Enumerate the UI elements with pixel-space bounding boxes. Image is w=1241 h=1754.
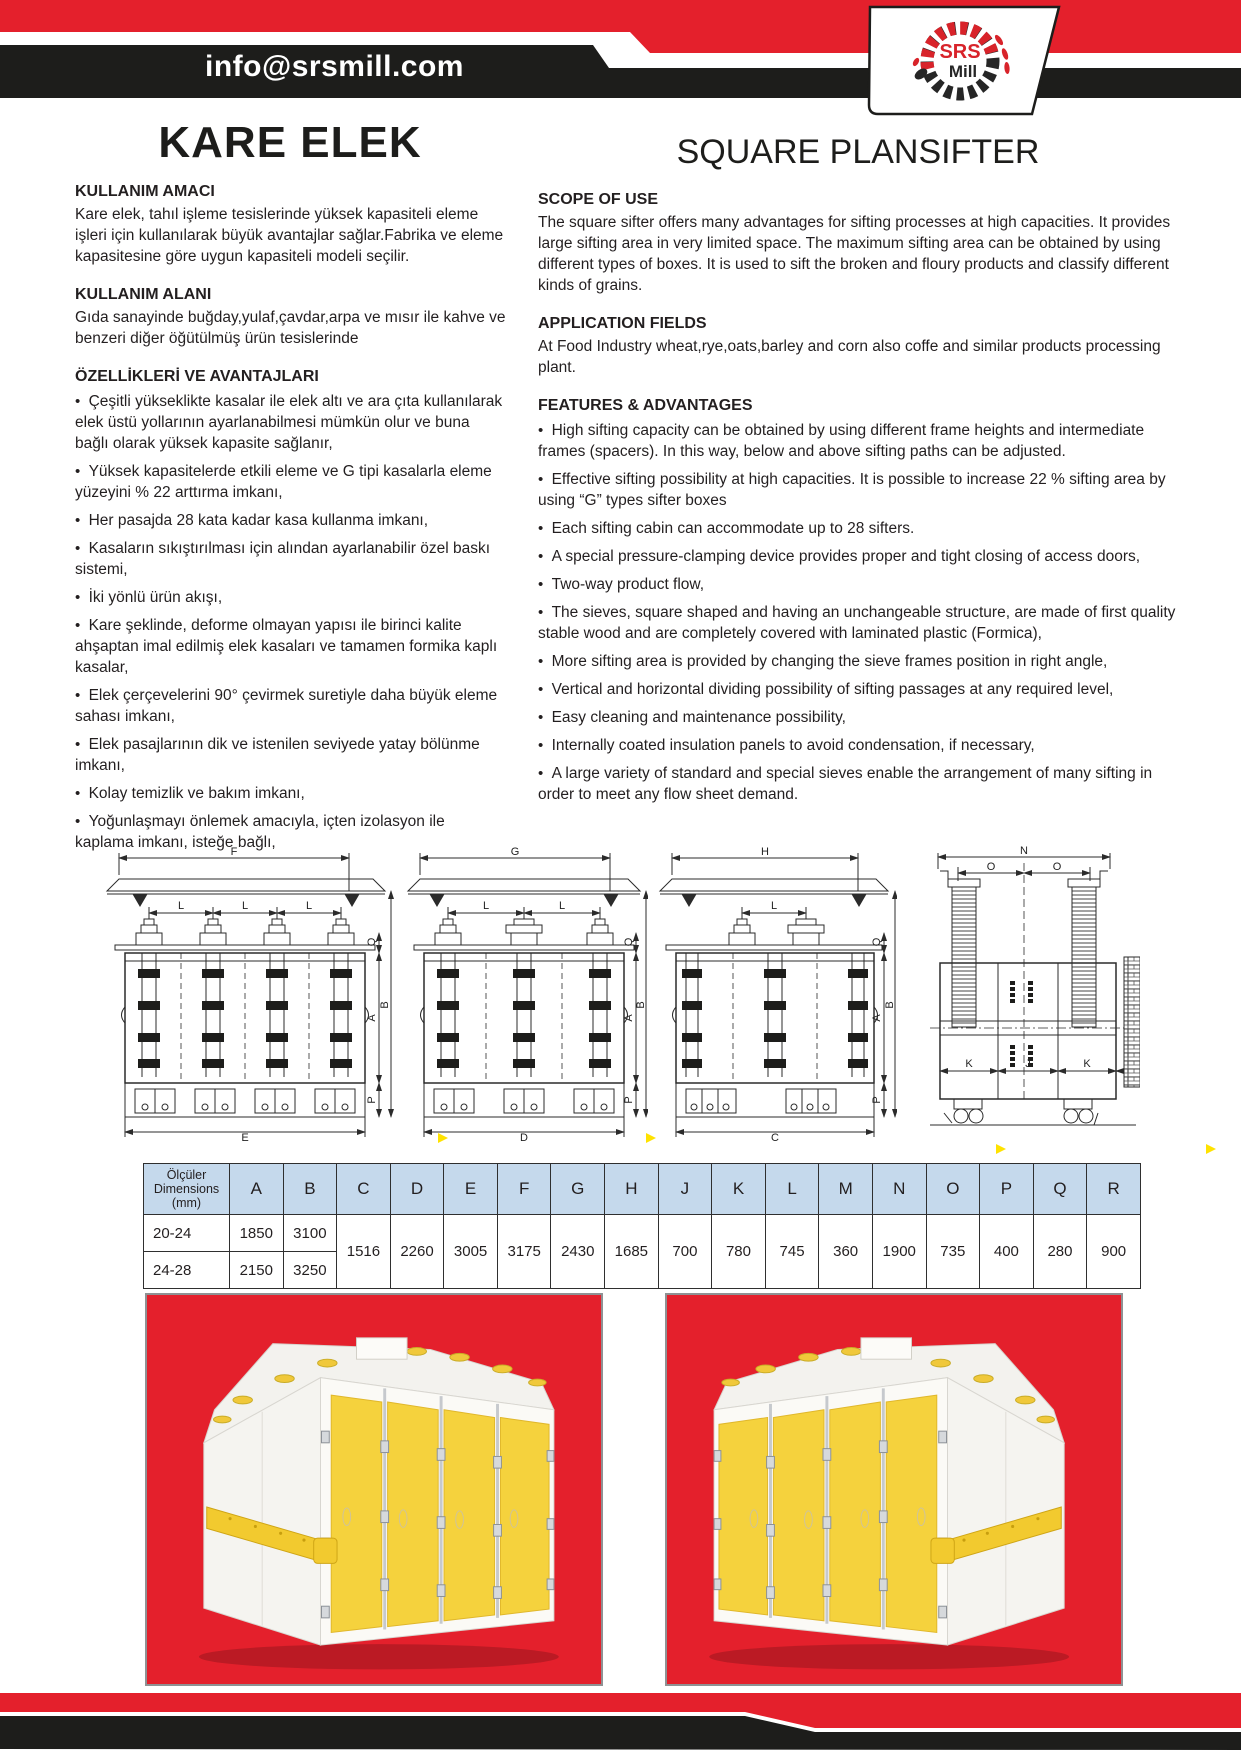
col-header: Q	[1033, 1164, 1087, 1215]
list-item: Each sifting cabin can accommodate up to…	[538, 518, 1178, 539]
svg-text:L: L	[242, 900, 248, 912]
list-item: Vertical and horizontal dividing possibi…	[538, 679, 1178, 700]
contact-email: info@srsmill.com	[205, 50, 464, 84]
svg-text:P: P	[366, 1096, 378, 1103]
list-item: Her pasajda 28 kata kadar kasa kullanma …	[75, 510, 507, 531]
col-header: R	[1087, 1164, 1141, 1215]
svg-text:K: K	[1083, 1058, 1091, 1070]
list-item: High sifting capacity can be obtained by…	[538, 420, 1178, 462]
col-header: M	[819, 1164, 873, 1215]
model-cell: 24-28	[144, 1252, 230, 1289]
list-item: Easy cleaning and maintenance possibilit…	[538, 707, 1178, 728]
svg-text:O: O	[987, 861, 996, 873]
value-cell: 735	[926, 1215, 980, 1289]
logo-text-mill: Mill	[949, 62, 977, 81]
svg-text:B: B	[635, 1001, 647, 1008]
col-header: G	[551, 1164, 605, 1215]
yellow-marker	[646, 1133, 656, 1143]
tr-purpose-heading: KULLANIM AMACI	[75, 181, 507, 202]
technical-drawing-front-view-small: H L Q A B P C	[652, 845, 897, 1141]
col-header: L	[765, 1164, 819, 1215]
dim-label: E	[241, 1132, 248, 1141]
svg-text:P: P	[623, 1096, 635, 1103]
list-item: Çeşitli yükseklikte kasalar ile elek alt…	[75, 391, 507, 454]
list-item: Two-way product flow,	[538, 574, 1178, 595]
turkish-column: KULLANIM AMACI Kare elek, tahıl işleme t…	[75, 181, 507, 860]
value-cell: 2150	[230, 1252, 284, 1289]
logo-text-srs: SRS	[939, 41, 980, 63]
list-item: A large variety of standard and special …	[538, 763, 1178, 805]
table-header-dimensions: Ölçüler Dimensions (mm)	[144, 1164, 230, 1215]
technical-drawing-front-view-medium: G L L Q A B P	[400, 845, 648, 1141]
col-header: N	[872, 1164, 926, 1215]
yellow-marker	[438, 1133, 448, 1143]
dimensions-table: Ölçüler Dimensions (mm) A B C D E F G H …	[143, 1163, 1141, 1289]
tr-feature-list: Çeşitli yükseklikte kasalar ile elek alt…	[75, 391, 507, 853]
value-cell: 3100	[283, 1215, 337, 1252]
svg-text:P: P	[871, 1096, 883, 1103]
svg-text:K: K	[965, 1058, 973, 1070]
dim-label: D	[520, 1132, 528, 1141]
svg-text:J: J	[1025, 1058, 1031, 1070]
tr-features-heading: ÖZELLİKLERİ VE AVANTAJLARI	[75, 366, 507, 387]
col-header: P	[980, 1164, 1034, 1215]
value-cell: 1516	[337, 1215, 391, 1289]
value-cell: 745	[765, 1215, 819, 1289]
list-item: Internally coated insulation panels to a…	[538, 735, 1178, 756]
svg-text:L: L	[771, 900, 777, 912]
dim-label: H	[761, 846, 769, 858]
col-header: F	[497, 1164, 551, 1215]
value-cell: 280	[1033, 1215, 1087, 1289]
value-cell: 2260	[390, 1215, 444, 1289]
svg-text:Q: Q	[623, 937, 635, 946]
right-dimensions: Q A B P	[366, 891, 391, 1117]
dim-label: N	[1020, 845, 1028, 857]
yellow-marker	[996, 1144, 1006, 1154]
english-column: SCOPE OF USE The square sifter offers ma…	[538, 189, 1178, 812]
en-feature-list: High sifting capacity can be obtained by…	[538, 420, 1178, 805]
svg-text:A: A	[871, 1014, 883, 1022]
product-photo-left	[145, 1293, 603, 1686]
tr-area-heading: KULLANIM ALANI	[75, 284, 507, 305]
list-item: Effective sifting possibility at high ca…	[538, 469, 1178, 511]
tr-purpose-text: Kare elek, tahıl işleme tesislerinde yük…	[75, 204, 507, 267]
brick-wall	[1124, 957, 1140, 1087]
model-cell: 20-24	[144, 1215, 230, 1252]
vent-slots	[1010, 981, 1033, 1067]
col-header: B	[283, 1164, 337, 1215]
table-row: 20-24 1850 3100 1516 2260 3005 3175 2430…	[144, 1215, 1141, 1252]
feet	[944, 1099, 1098, 1125]
svg-text:L: L	[178, 900, 184, 912]
en-scope-heading: SCOPE OF USE	[538, 189, 1178, 210]
svg-text:L: L	[306, 900, 312, 912]
list-item: The sieves, square shaped and having an …	[538, 602, 1178, 644]
value-cell: 3175	[497, 1215, 551, 1289]
plansifter-machine-illustration-mirrored	[667, 1295, 1121, 1684]
svg-text:B: B	[884, 1001, 896, 1008]
col-header: E	[444, 1164, 498, 1215]
list-item: Kasaların sıkıştırılması için alından ay…	[75, 538, 507, 580]
footer-bands	[0, 1684, 1241, 1754]
en-features-heading: FEATURES & ADVANTAGES	[538, 395, 1178, 416]
plansifter-machine-illustration	[147, 1295, 601, 1684]
caps	[136, 919, 354, 945]
value-cell: 3250	[283, 1252, 337, 1289]
list-item: Kare şeklinde, deforme olmayan yapısı il…	[75, 615, 507, 678]
dim-label: G	[511, 846, 520, 858]
value-cell: 780	[712, 1215, 766, 1289]
company-logo: SRS Mill	[860, 2, 1070, 120]
yellow-marker	[1206, 1144, 1216, 1154]
col-header: J	[658, 1164, 712, 1215]
col-header: H	[605, 1164, 659, 1215]
value-cell: 2430	[551, 1215, 605, 1289]
table-header-row: Ölçüler Dimensions (mm) A B C D E F G H …	[144, 1164, 1141, 1215]
dim-label: C	[771, 1132, 779, 1141]
en-scope-text: The square sifter offers many advantages…	[538, 212, 1178, 296]
value-cell: 360	[819, 1215, 873, 1289]
list-item: More sifting area is provided by changin…	[538, 651, 1178, 672]
col-header: C	[337, 1164, 391, 1215]
en-application-heading: APPLICATION FIELDS	[538, 313, 1178, 334]
brochure-page: info@srsmill.com SRS Mill KARE ELEK SQUA…	[0, 0, 1241, 1754]
dim-label: F	[231, 846, 238, 858]
value-cell: 400	[980, 1215, 1034, 1289]
svg-text:O: O	[1053, 861, 1062, 873]
svg-text:L: L	[559, 900, 565, 912]
page-title-turkish: KARE ELEK	[70, 118, 510, 168]
col-header: A	[230, 1164, 284, 1215]
svg-text:A: A	[623, 1014, 635, 1022]
en-application-text: At Food Industry wheat,rye,oats,barley a…	[538, 336, 1178, 378]
l-dimension-row: L L L	[149, 900, 341, 919]
list-item: A special pressure-clamping device provi…	[538, 546, 1178, 567]
value-cell: 1850	[230, 1215, 284, 1252]
value-cell: 3005	[444, 1215, 498, 1289]
value-cell: 1685	[605, 1215, 659, 1289]
kjkr-dimensions: K J K R	[940, 1058, 1140, 1071]
list-item: Kolay temizlik ve bakım imkanı,	[75, 783, 507, 804]
tr-area-text: Gıda sanayinde buğday,yulaf,çavdar,arpa …	[75, 307, 507, 349]
col-header: K	[712, 1164, 766, 1215]
channels	[138, 953, 352, 1079]
page-title-english: SQUARE PLANSIFTER	[538, 133, 1178, 172]
svg-text:L: L	[483, 900, 489, 912]
list-item: İki yönlü ürün akışı,	[75, 587, 507, 608]
list-item: Elek pasajlarının dik ve istenilen seviy…	[75, 734, 507, 776]
value-cell: 900	[1087, 1215, 1141, 1289]
technical-drawing-side-view: N O O K J K R	[900, 845, 1140, 1141]
value-cell: 1900	[872, 1215, 926, 1289]
svg-text:Q: Q	[871, 937, 883, 946]
col-header: O	[926, 1164, 980, 1215]
svg-text:Q: Q	[366, 937, 378, 946]
svg-text:B: B	[379, 1001, 391, 1008]
col-header: D	[390, 1164, 444, 1215]
svg-text:A: A	[366, 1014, 378, 1022]
technical-drawing-front-view-large: F L L L	[97, 845, 395, 1141]
outlet-grids	[135, 1089, 355, 1113]
value-cell: 700	[658, 1215, 712, 1289]
list-item: Yüksek kapasitelerde etkili eleme ve G t…	[75, 461, 507, 503]
product-photo-right	[665, 1293, 1123, 1686]
list-item: Elek çerçevelerini 90° çevirmek suretiyl…	[75, 685, 507, 727]
